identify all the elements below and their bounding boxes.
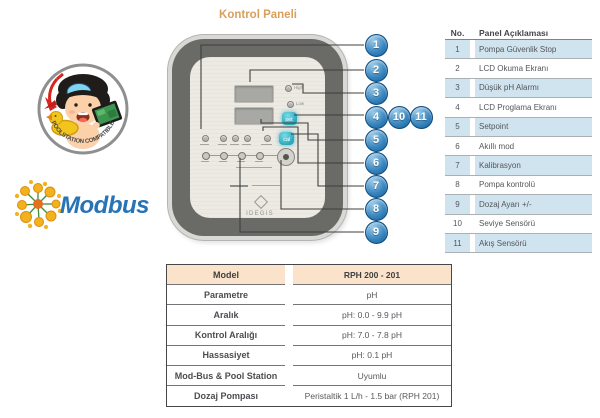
callout-10: 10 (388, 106, 411, 129)
callout-6: 6 (365, 152, 388, 175)
callout-7: 7 (365, 175, 388, 198)
callout-4: 4 (365, 106, 388, 129)
callout-3: 3 (365, 82, 388, 105)
callout-8: 8 (365, 198, 388, 221)
callout-9: 9 (365, 221, 388, 244)
page: Kontrol Paneli (0, 0, 600, 418)
callout-5: 5 (365, 129, 388, 152)
connector-lines (0, 0, 600, 418)
callout-2: 2 (365, 59, 388, 82)
callout-1: 1 (365, 34, 388, 57)
callout-11: 11 (410, 106, 433, 129)
